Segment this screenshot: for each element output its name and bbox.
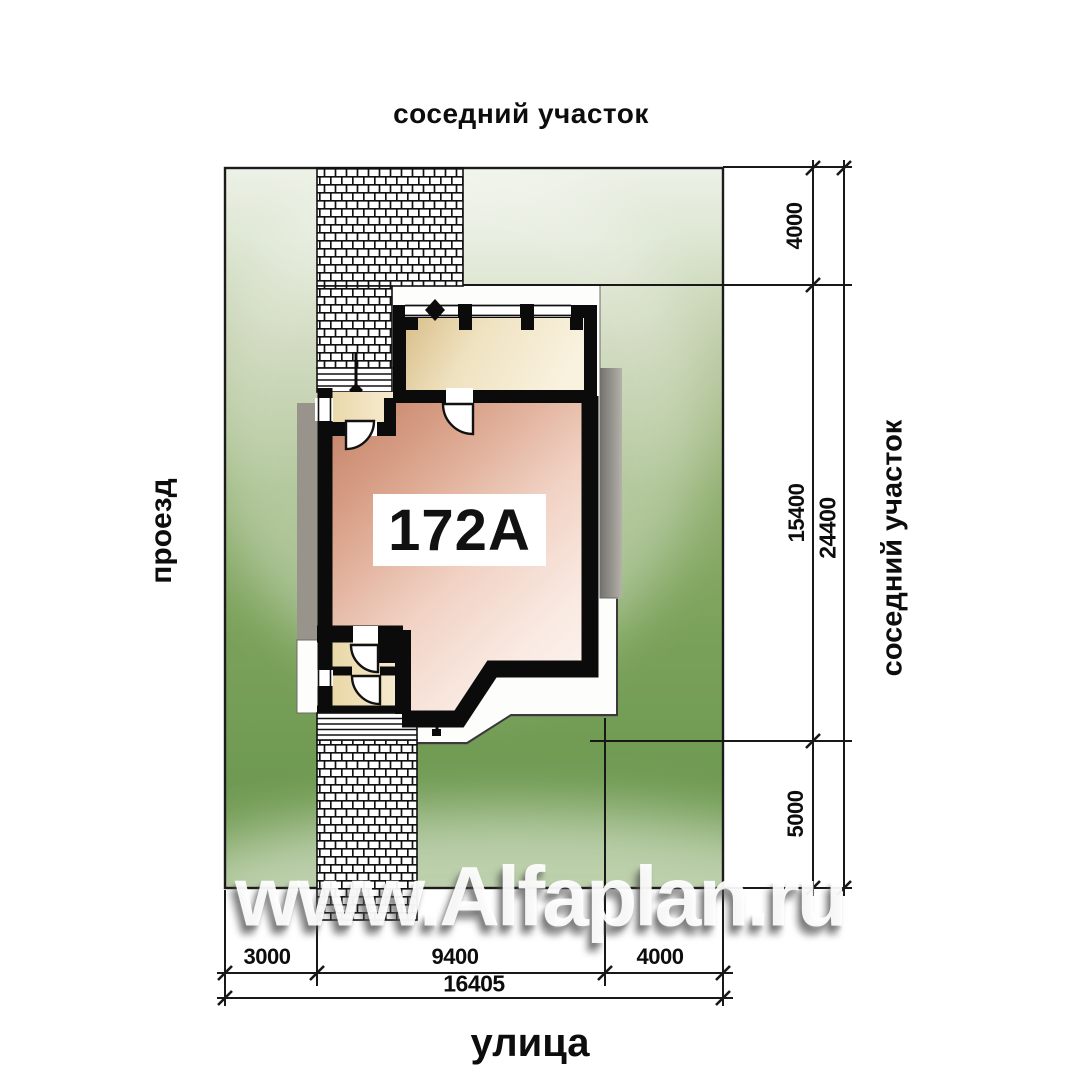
dim-bottom-left: 3000 xyxy=(244,946,291,968)
dim-bottom-right: 4000 xyxy=(637,946,684,968)
dim-bottom-house: 9400 xyxy=(432,946,479,968)
label-street: улица xyxy=(470,1023,589,1063)
label-passage: проезд xyxy=(147,478,177,583)
dim-right-setback-bottom: 5000 xyxy=(785,791,807,838)
site-plan-canvas: соседний участок соседний участок проезд… xyxy=(0,0,1080,1080)
house-number: 172A xyxy=(388,497,531,564)
watermark: www.Alfaplan.ru xyxy=(235,849,845,946)
dim-bottom-total: 16405 xyxy=(443,973,504,996)
label-neighbor-top: соседний участок xyxy=(393,100,649,128)
dim-right-house: 15400 xyxy=(786,484,808,543)
dim-right-setback-top: 4000 xyxy=(784,203,806,250)
dim-right-total: 24400 xyxy=(817,497,840,558)
garage-room xyxy=(399,311,591,397)
house-number-box: 172A xyxy=(373,494,546,566)
label-neighbor-right: соседний участок xyxy=(879,420,908,677)
